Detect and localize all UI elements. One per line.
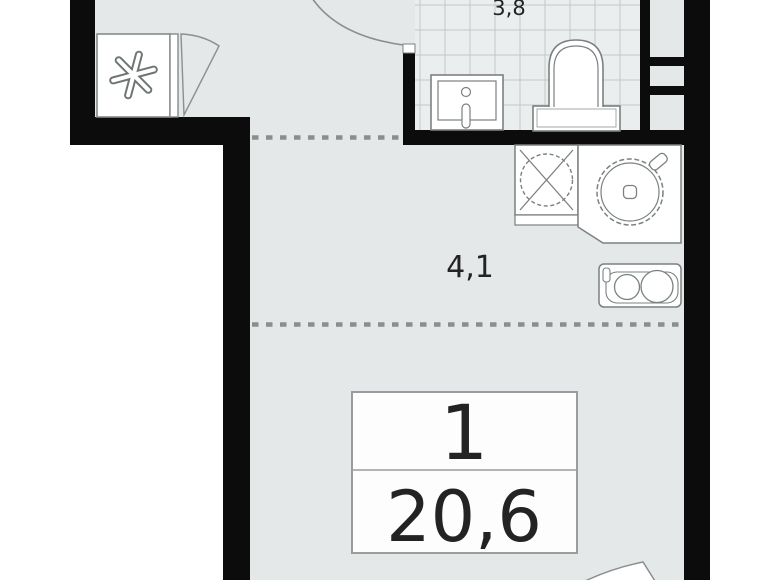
kitchen-round-sink-icon [578, 145, 681, 243]
vent-shaft-divider-2 [640, 86, 684, 95]
bathroom-area-label: 3,8 [492, 0, 525, 20]
wall-left-outer [223, 117, 250, 580]
vent-shaft-divider-1 [640, 57, 684, 66]
wall-bathroom-right [640, 0, 650, 145]
apartment-summary-box: 1 20,6 [352, 388, 577, 558]
floor-plan-drawing: 3,8 4,1 1 20,6 [0, 0, 780, 580]
floor-plan: 3,8 4,1 1 20,6 [0, 0, 780, 580]
wall-bathroom-bottom [403, 130, 710, 145]
wall-right-outer [684, 0, 710, 580]
hall-area-label: 4,1 [446, 250, 494, 285]
bath-sink-icon [431, 75, 503, 130]
washing-machine-icon [515, 145, 578, 225]
fridge-side-panel [170, 34, 178, 117]
total-area-label: 20,6 [386, 476, 542, 558]
stove-two-burner-icon [599, 264, 681, 307]
rooms-count-label: 1 [440, 388, 488, 477]
bathroom-door-jamb [403, 44, 415, 53]
